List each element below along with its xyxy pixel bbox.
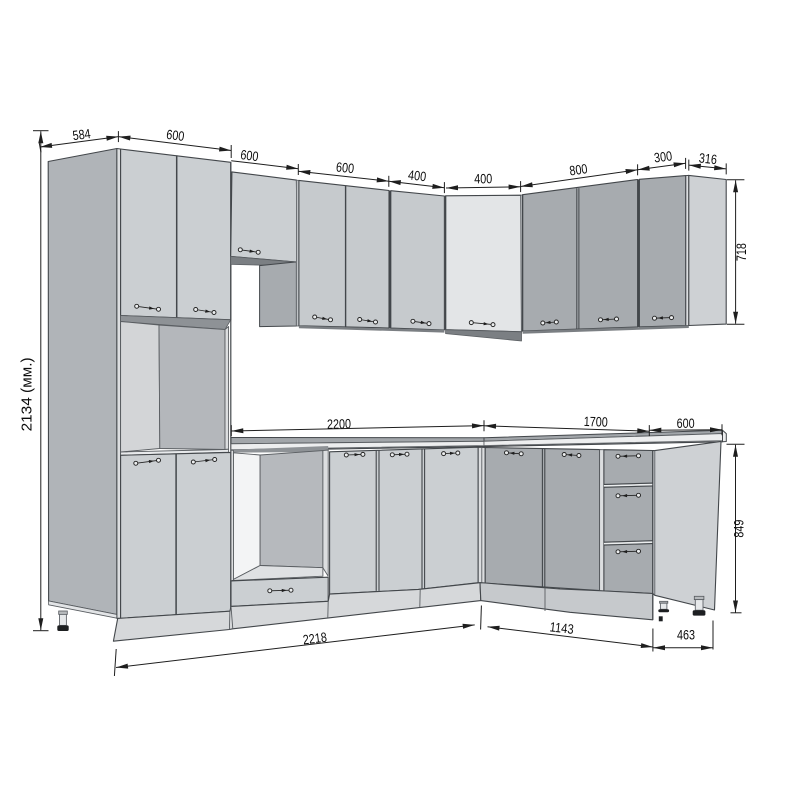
svg-text:718: 718 xyxy=(734,243,749,261)
svg-text:849: 849 xyxy=(732,520,747,538)
svg-text:600: 600 xyxy=(335,159,354,176)
svg-text:600: 600 xyxy=(240,147,260,164)
svg-text:2134 (мм.): 2134 (мм.) xyxy=(18,357,35,431)
svg-text:300: 300 xyxy=(653,148,673,165)
svg-text:400: 400 xyxy=(474,171,492,186)
svg-text:1143: 1143 xyxy=(549,619,575,637)
svg-text:600: 600 xyxy=(166,127,186,144)
svg-text:2218: 2218 xyxy=(302,630,328,648)
svg-text:800: 800 xyxy=(569,161,589,178)
svg-text:1700: 1700 xyxy=(584,414,609,430)
svg-text:463: 463 xyxy=(677,627,695,642)
svg-text:2200: 2200 xyxy=(327,416,351,432)
svg-text:584: 584 xyxy=(72,126,92,143)
svg-text:600: 600 xyxy=(677,416,695,431)
svg-text:316: 316 xyxy=(698,150,717,167)
svg-text:400: 400 xyxy=(407,167,427,184)
